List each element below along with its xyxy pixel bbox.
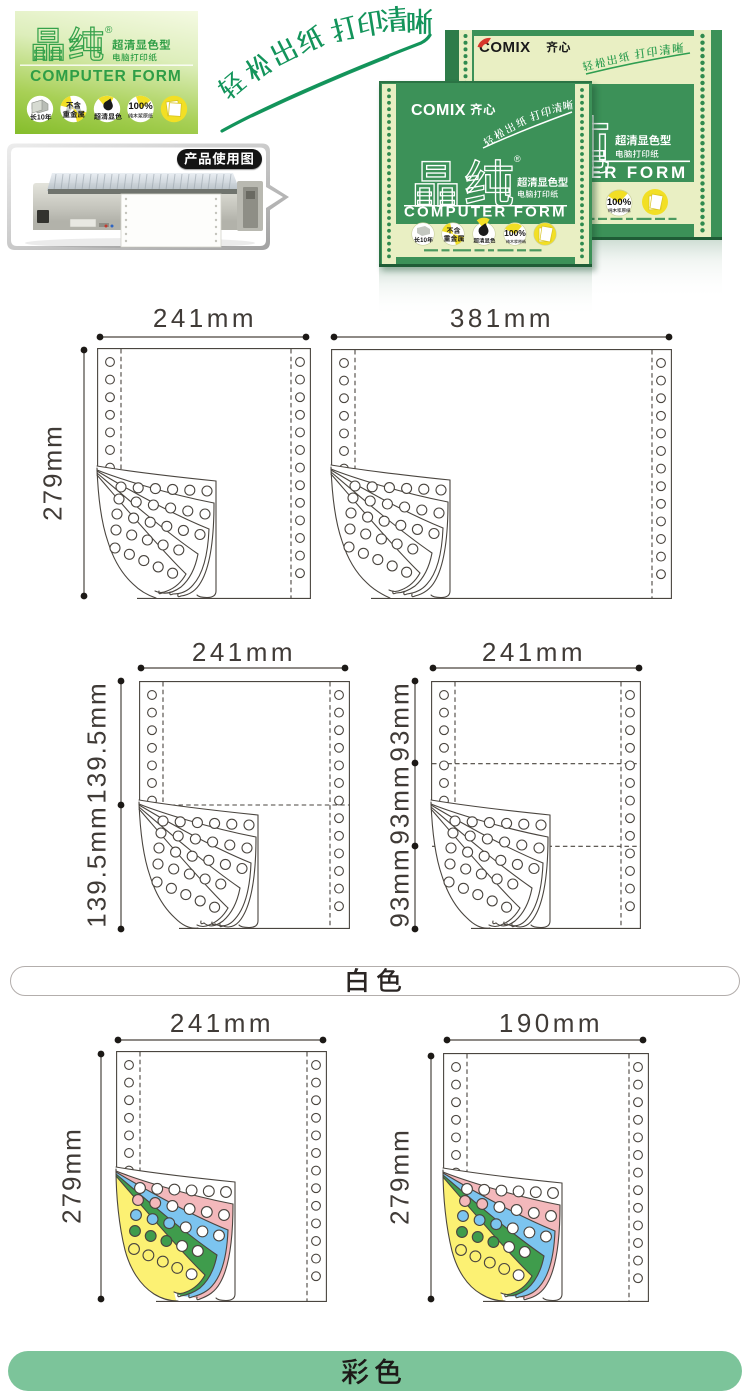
svg-text:®: ® [514,154,521,164]
svg-text:100%: 100% [607,197,632,208]
svg-text:100%: 100% [128,101,153,112]
svg-text:COMIX: COMIX [411,102,466,119]
svg-text:®: ® [105,25,113,36]
svg-text:COMPUTER FORM: COMPUTER FORM [30,68,182,85]
svg-text:100%: 100% [504,228,526,238]
